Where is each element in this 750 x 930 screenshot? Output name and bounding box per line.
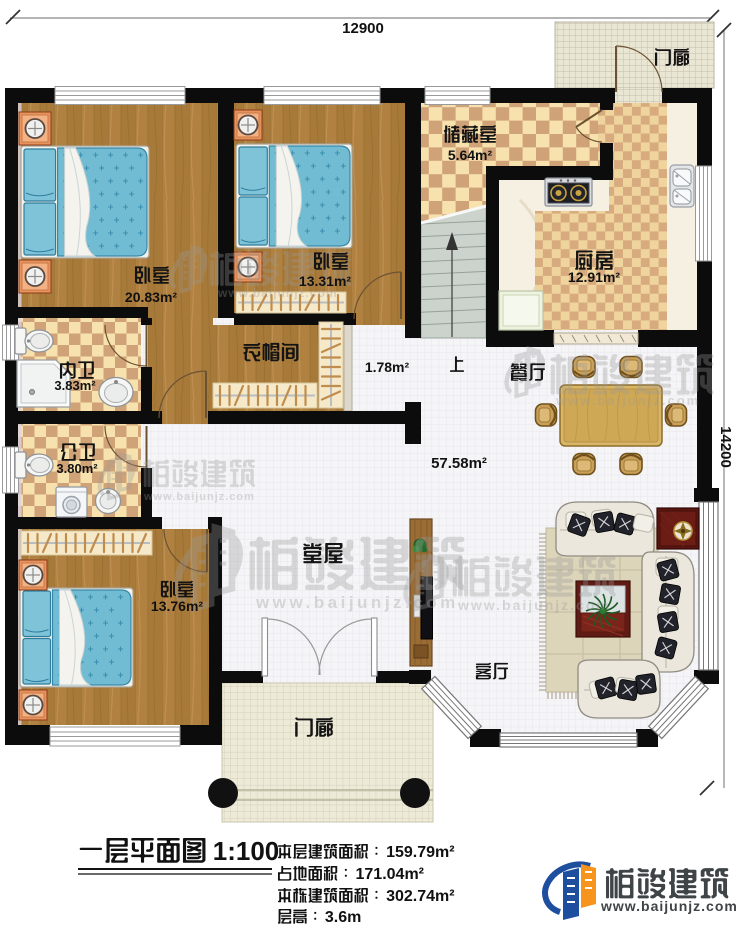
svg-text:13.76m²: 13.76m² (151, 598, 203, 614)
svg-text:5.64m²: 5.64m² (448, 147, 493, 163)
svg-text:www.baijunjz.com: www.baijunjz.com (555, 393, 700, 408)
svg-text:171.04m²: 171.04m² (356, 866, 425, 883)
svg-text:www.baijunjz.com: www.baijunjz.com (600, 898, 738, 914)
svg-text:302.74m²: 302.74m² (386, 888, 455, 905)
svg-text:14200: 14200 (717, 426, 734, 468)
svg-text:159.79m²: 159.79m² (386, 844, 455, 861)
svg-text:1:100: 1:100 (213, 836, 280, 866)
svg-text:12.91m²: 12.91m² (568, 269, 620, 285)
svg-text:57.58m²: 57.58m² (431, 455, 487, 472)
svg-text:3.83m²: 3.83m² (54, 378, 96, 393)
svg-text:www.baijunjz.com: www.baijunjz.com (143, 491, 255, 503)
svg-text:20.83m²: 20.83m² (125, 289, 177, 305)
svg-text:3.6m: 3.6m (325, 909, 361, 926)
svg-text:1.78m²: 1.78m² (365, 359, 410, 375)
svg-text:www.baijunjz.com: www.baijunjz.com (457, 597, 611, 613)
svg-text:13.31m²: 13.31m² (299, 273, 351, 289)
svg-text:12900: 12900 (342, 20, 384, 37)
svg-text:3.80m²: 3.80m² (56, 461, 98, 476)
